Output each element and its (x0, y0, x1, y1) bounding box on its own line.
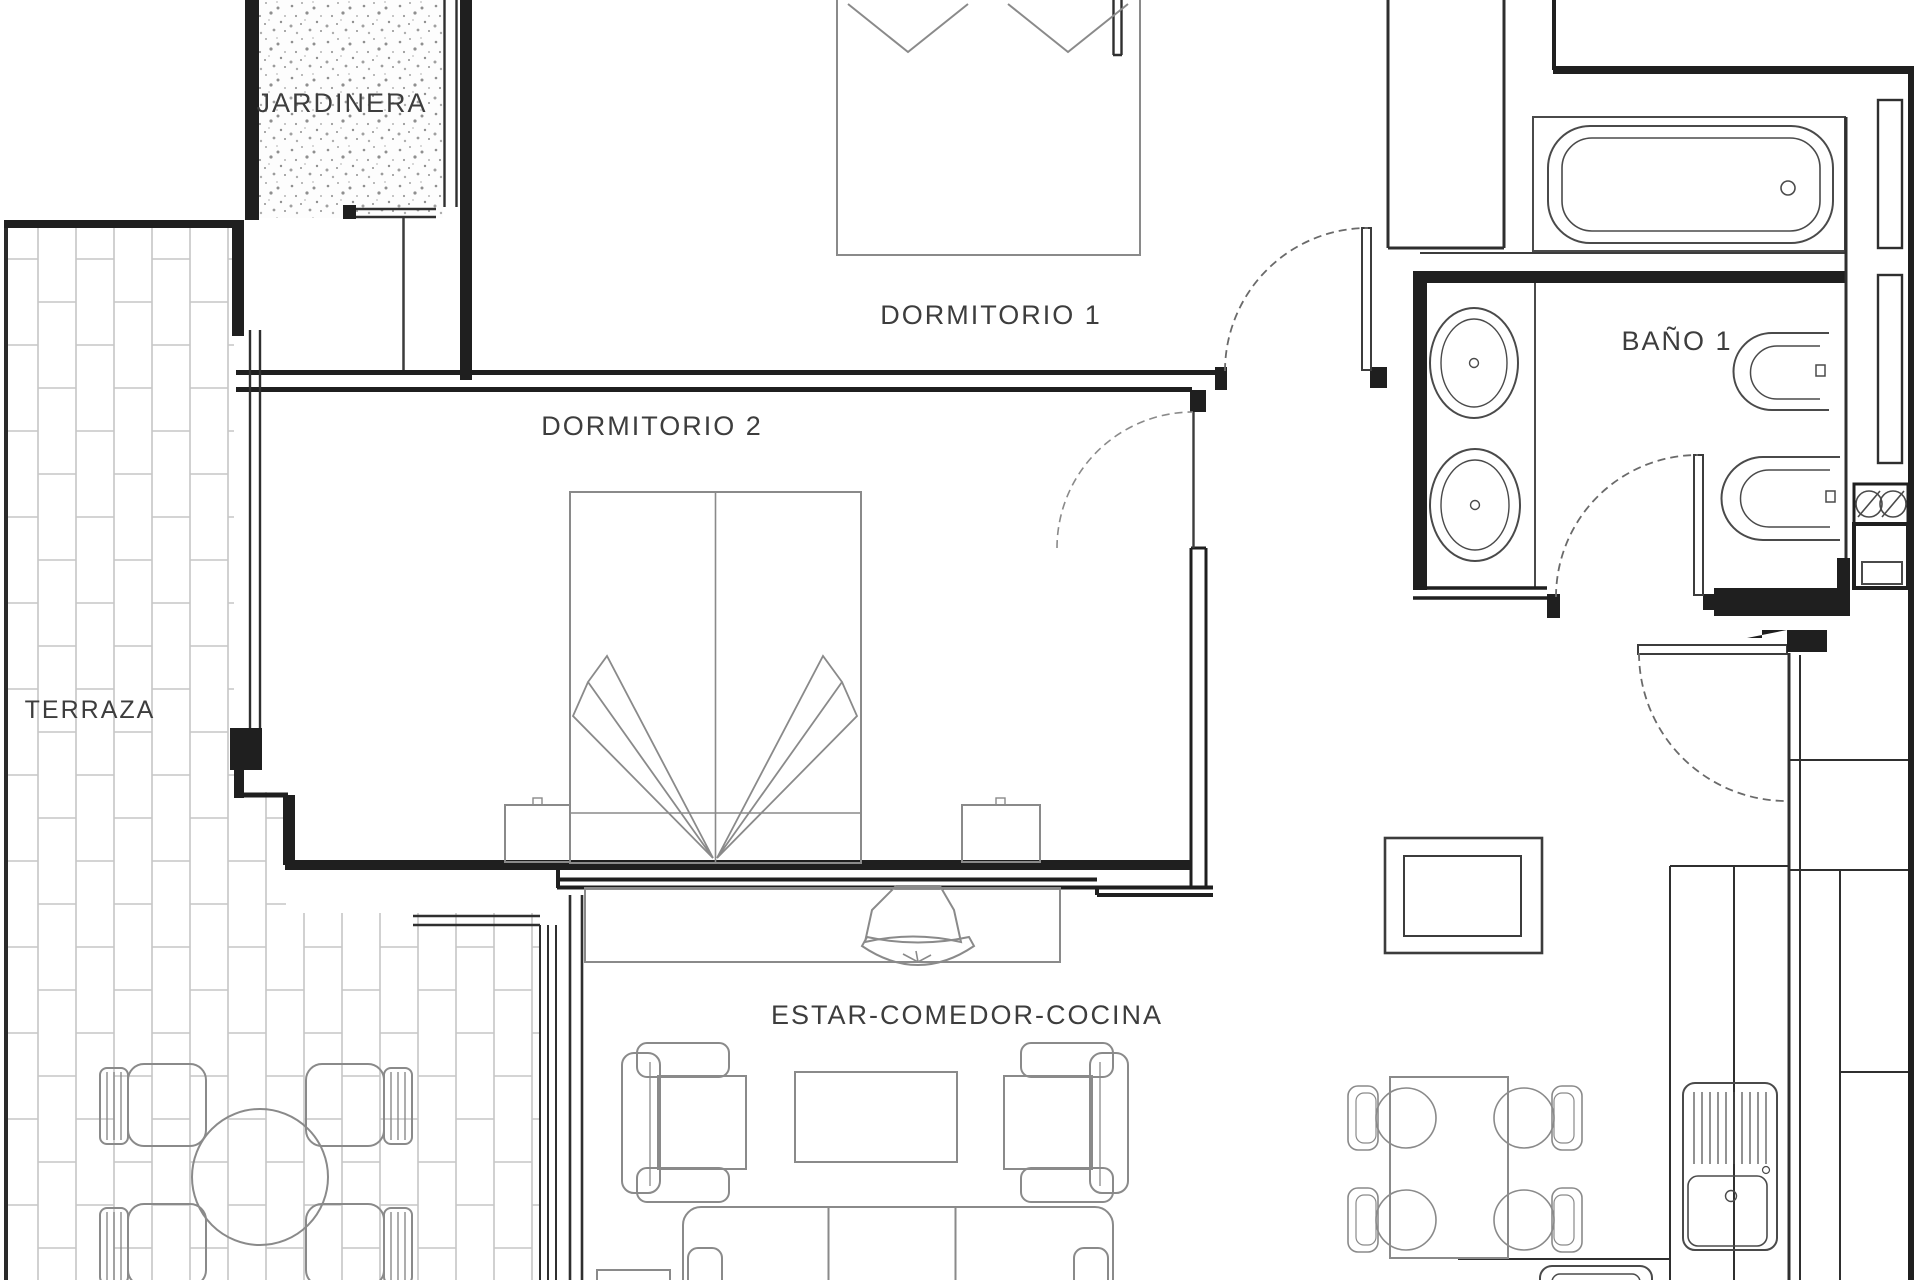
bed-fan-pillow-left (588, 656, 713, 858)
entry-door (1638, 630, 1827, 801)
north-wall-stub (1113, 0, 1122, 55)
wall-lines (1413, 588, 1547, 598)
armchair-right (1004, 1043, 1128, 1202)
sink-tap (1763, 1167, 1770, 1174)
window-tracks (540, 925, 556, 1280)
dormitorio1-label: DORMITORIO 1 (880, 300, 1102, 330)
washer-inner (1862, 562, 1902, 584)
dining-chair-back-inner (1554, 1093, 1574, 1143)
dining-seat (1376, 1190, 1436, 1250)
bidet-inner (1741, 470, 1831, 527)
bed-pillow-left (848, 4, 968, 52)
bidet-tap (1826, 491, 1835, 502)
sofa (597, 1207, 1113, 1280)
tv-symbol (903, 951, 931, 962)
kitchen (1458, 653, 1908, 1280)
dorm1-south-wall (236, 367, 1387, 390)
dining-set (1348, 1077, 1582, 1258)
terraza-paving-upper (6, 224, 234, 1280)
sofa-outline (683, 1207, 1113, 1280)
bath-east-window (1878, 100, 1902, 248)
bed-fan-pillow-right2 (717, 682, 857, 858)
bano1-label: BAÑO 1 (1621, 325, 1732, 356)
door-swing-arc (1639, 653, 1787, 801)
living-north-wall (557, 868, 1213, 895)
oven-outline (1540, 1266, 1652, 1280)
sink-oval (1430, 449, 1520, 561)
bano1-room: BAÑO 1 (1388, 0, 1914, 1280)
floor-plan-svg: TERRAZA JARDINERA (0, 0, 1920, 1280)
dining-table (1390, 1077, 1508, 1258)
sink-oval-inner (1441, 460, 1509, 550)
sink-unit (1683, 1083, 1777, 1250)
door-leaf (1638, 645, 1787, 654)
terraza-label: TERRAZA (25, 696, 156, 724)
dining-seat (1494, 1088, 1554, 1148)
dorm2-sw-corner-wall (283, 795, 295, 865)
bed-fan-pillow-right (717, 656, 842, 858)
wall-corner (1837, 558, 1850, 616)
hob-slashes (1858, 491, 1904, 517)
jardinera-sill-block (343, 205, 356, 219)
dorm1-west-wall (460, 0, 472, 380)
dining-chair-back-inner (1356, 1195, 1376, 1245)
vanity-double-sink (1430, 283, 1535, 588)
dorm1-door (1225, 228, 1371, 371)
armchair-arm (1021, 1043, 1113, 1077)
nightstand-right (962, 805, 1040, 862)
bath-north-wall (1553, 66, 1914, 74)
tv-sideboard (585, 886, 1060, 965)
terraza-west-wall (4, 222, 8, 1280)
nightstand-right-knob (996, 798, 1005, 805)
sink-drain (1470, 359, 1479, 368)
dorm2-double-bed (505, 492, 1040, 863)
door-leaf (1362, 228, 1371, 370)
dormitorio2-label: DORMITORIO 2 (541, 411, 763, 441)
sink-oval (1430, 308, 1518, 418)
coffee-table (795, 1072, 957, 1162)
sink-oval-inner (1441, 319, 1507, 407)
tub-outer (1548, 126, 1833, 243)
square-table (1385, 838, 1542, 953)
dorm2-south-wall (285, 860, 1191, 870)
washer-column (1854, 484, 1908, 588)
armchair-seat (1004, 1076, 1092, 1169)
dining-seat (1376, 1088, 1436, 1148)
terraza-north-wall (4, 220, 244, 228)
dorm1-double-bed (837, 0, 1140, 255)
armchair-seat (658, 1076, 746, 1169)
side-table (597, 1270, 670, 1280)
tub-drain (1781, 181, 1795, 195)
bathtub (1533, 117, 1845, 251)
wall-lines (557, 880, 1213, 888)
armchair-arm (637, 1043, 729, 1077)
bano1-door (1556, 455, 1703, 597)
sideboard (585, 888, 1060, 962)
wall-lines (1191, 548, 1206, 887)
armchair-left (622, 1043, 746, 1202)
dorm2-west-wall-upper (232, 224, 244, 336)
estar-comedor-cocina-label: ESTAR-COMEDOR-COCINA (771, 1000, 1163, 1030)
nightstand-left (505, 805, 570, 862)
sofa-cushion-lines (829, 1207, 956, 1280)
sink-basin (1688, 1176, 1767, 1246)
closet-shaft (1388, 0, 1504, 248)
bath-mid-wall (1413, 271, 1845, 283)
square-table-inner (1404, 856, 1521, 936)
toilet (1734, 333, 1830, 410)
toilet-flush (1816, 365, 1825, 376)
armchair-arm (637, 1168, 729, 1202)
jardinera-label: JARDINERA (256, 88, 427, 118)
dining-chair-back-inner (1554, 1195, 1574, 1245)
door-leaf (1694, 455, 1703, 595)
oven (1540, 1266, 1652, 1280)
door-swing-arc (1556, 455, 1698, 597)
floor-plan-canvas: TERRAZA JARDINERA (0, 0, 1920, 1280)
bed-fan-pillow-left2 (573, 682, 713, 858)
door-jamb (1547, 594, 1560, 618)
jardinera-room: JARDINERA (245, 0, 457, 220)
door-jamb (1370, 367, 1387, 388)
bed-outline (837, 0, 1140, 255)
kitchen-sink (1683, 1083, 1777, 1250)
bidet (1721, 457, 1840, 540)
sofa-armrest (1074, 1248, 1108, 1280)
dining-chair-back-inner (1356, 1093, 1376, 1143)
east-outer-wall (1908, 66, 1914, 1280)
dorm2-west-wall-block (230, 728, 262, 770)
bed-pillow-right (1008, 4, 1128, 52)
tv-body (865, 886, 961, 942)
toilet-inner (1751, 346, 1821, 399)
wall-stub (1190, 390, 1206, 412)
jardinera-east-window (445, 0, 457, 207)
wall-lines (570, 895, 582, 1280)
door-swing-arc (1057, 412, 1193, 548)
vanity-west-wall (1413, 277, 1427, 590)
wall-block (1714, 588, 1850, 616)
terraza-paving-mid (234, 792, 286, 1280)
door-swing-arc (1225, 228, 1368, 371)
armchair-arm (1021, 1168, 1113, 1202)
oven-inner (1552, 1274, 1640, 1280)
drainboard-hatch (1694, 1092, 1766, 1164)
sink-drain (1471, 501, 1480, 510)
hob-box (1854, 484, 1908, 524)
estar-comedor-cocina-room: ESTAR-COMEDOR-COCINA (413, 630, 1908, 1280)
bath-east-window2 (1878, 275, 1902, 463)
dorm2-door (1057, 412, 1194, 548)
sofa-armrest (688, 1248, 722, 1280)
nightstand-left-knob (533, 798, 542, 805)
bath-south-wall (1413, 558, 1850, 618)
dining-seat (1494, 1190, 1554, 1250)
